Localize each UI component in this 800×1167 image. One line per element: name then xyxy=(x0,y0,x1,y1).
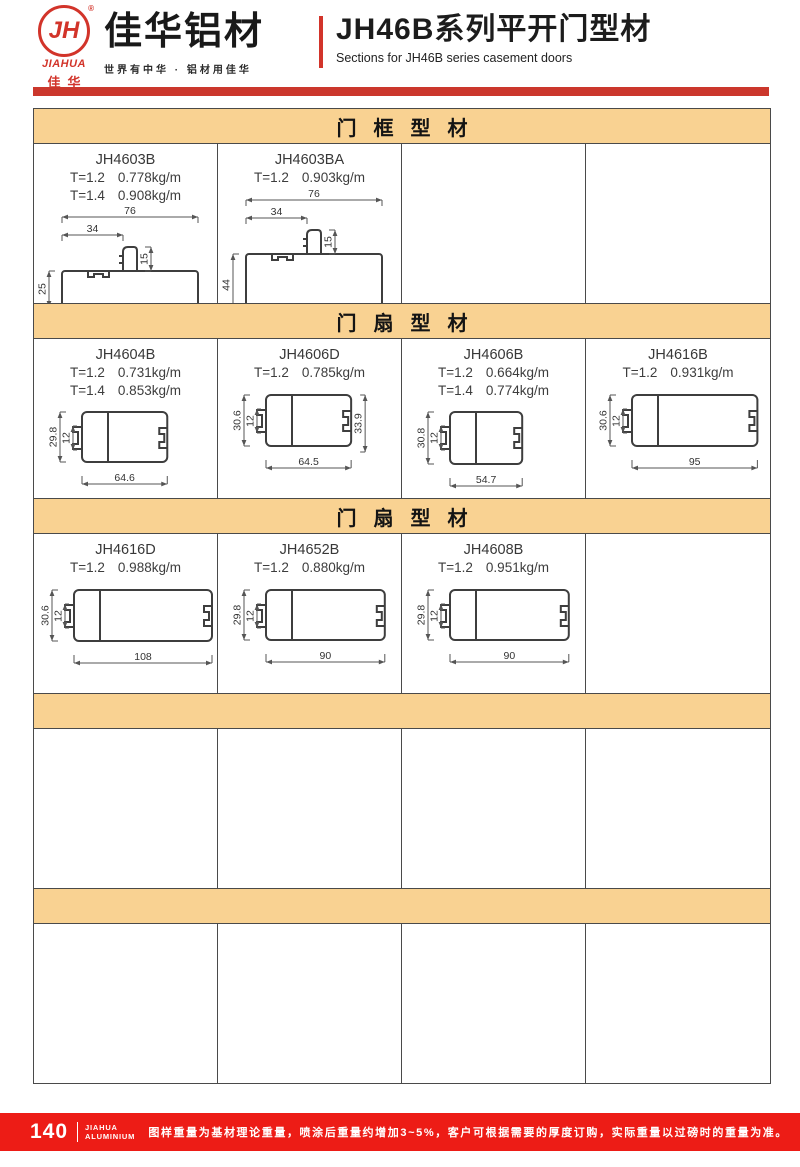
svg-text:29.8: 29.8 xyxy=(47,427,59,448)
profile-drawing: 29.81290 xyxy=(410,578,578,681)
profile-spec: T=1.40.853kg/m xyxy=(70,382,181,400)
svg-text:30.8: 30.8 xyxy=(415,428,427,449)
profile-code: JH4606B xyxy=(464,346,524,364)
profile-cell: JH4616BT=1.20.931kg/m30.61295 xyxy=(586,339,770,498)
profile-spec: T=1.20.664kg/m xyxy=(438,364,549,382)
svg-text:12: 12 xyxy=(244,610,256,622)
svg-text:33.9: 33.9 xyxy=(352,413,364,434)
catalog-page: JH ® JIAHUA 佳华 佳华铝材 世界有中华 · 铝材用佳华 JH46B系… xyxy=(0,0,800,1167)
empty-cell xyxy=(218,924,402,1083)
svg-text:54.7: 54.7 xyxy=(475,474,496,486)
profile-code: JH4604B xyxy=(96,346,156,364)
svg-text:12: 12 xyxy=(244,415,256,427)
profile-spec: T=1.40.774kg/m xyxy=(438,382,549,400)
svg-text:90: 90 xyxy=(319,650,331,662)
empty-cell xyxy=(586,144,770,303)
svg-text:64.5: 64.5 xyxy=(298,456,319,468)
svg-text:30.6: 30.6 xyxy=(231,410,243,431)
spec-thickness: T=1.4 xyxy=(438,382,473,400)
svg-text:12: 12 xyxy=(428,610,440,622)
empty-cell xyxy=(402,924,586,1083)
page-header: JH ® JIAHUA 佳华 佳华铝材 世界有中华 · 铝材用佳华 JH46B系… xyxy=(0,0,800,86)
section-title: 门扇型材 xyxy=(320,502,485,531)
profile-code: JH4652B xyxy=(280,541,340,559)
page-footer: 140 JIAHUA ALUMINIUM 图样重量为基材理论重量，喷涂后重量约增… xyxy=(0,1113,800,1151)
spec-thickness: T=1.2 xyxy=(254,169,289,187)
svg-text:12: 12 xyxy=(428,432,440,444)
profile-code: JH4603B xyxy=(96,151,156,169)
page-number: 140 xyxy=(30,1120,68,1144)
svg-text:12: 12 xyxy=(612,415,623,427)
spec-weight: 0.778kg/m xyxy=(118,169,181,187)
profile-drawing: 76341544 xyxy=(222,188,398,303)
profile-table: 门框型材JH4603BT=1.20.778kg/mT=1.40.908kg/m7… xyxy=(33,108,771,1084)
profile-cell: JH4606BT=1.20.664kg/mT=1.40.774kg/m30.81… xyxy=(402,339,586,498)
spec-thickness: T=1.2 xyxy=(70,559,105,577)
section-header xyxy=(34,693,770,729)
registered-mark-icon: ® xyxy=(88,4,94,13)
company-logo: JH ® JIAHUA 佳华 xyxy=(22,5,106,91)
footer-note: 图样重量为基材理论重量，喷涂后重量约增加3~5%，客户可根据需要的厚度订购，实际… xyxy=(148,1124,788,1140)
page-title: JH46B系列平开门型材 xyxy=(336,13,651,48)
title-block: JH46B系列平开门型材 Sections for JH46B series c… xyxy=(336,13,651,65)
spec-weight: 0.731kg/m xyxy=(118,364,181,382)
spec-weight: 0.951kg/m xyxy=(486,559,549,577)
section-row: JH4603BT=1.20.778kg/mT=1.40.908kg/m76341… xyxy=(34,144,770,303)
spec-weight: 0.853kg/m xyxy=(118,382,181,400)
svg-text:30.6: 30.6 xyxy=(39,605,51,626)
profile-drawing: 30.81254.7 xyxy=(410,400,578,498)
profile-cell: JH4603BT=1.20.778kg/mT=1.40.908kg/m76341… xyxy=(34,144,218,303)
spec-weight: 0.908kg/m xyxy=(118,187,181,205)
svg-text:76: 76 xyxy=(308,188,320,200)
brand-tagline: 世界有中华 · 铝材用佳华 xyxy=(104,61,264,76)
profile-drawing: 76341525 xyxy=(38,205,214,303)
svg-text:34: 34 xyxy=(86,223,98,235)
spec-thickness: T=1.2 xyxy=(438,364,473,382)
section-row: JH4616DT=1.20.988kg/m30.612108JH4652BT=1… xyxy=(34,534,770,693)
empty-cell xyxy=(34,729,218,888)
spec-weight: 0.931kg/m xyxy=(670,364,733,382)
spec-thickness: T=1.2 xyxy=(254,559,289,577)
header-divider xyxy=(319,16,323,68)
profile-cell: JH4603BAT=1.20.903kg/m76341544 xyxy=(218,144,402,303)
profile-spec: T=1.20.951kg/m xyxy=(438,559,549,577)
svg-text:90: 90 xyxy=(503,650,515,662)
spec-weight: 0.903kg/m xyxy=(302,169,365,187)
section-header: 门扇型材 xyxy=(34,498,770,534)
profile-drawing: 29.81290 xyxy=(226,578,394,681)
svg-text:30.6: 30.6 xyxy=(599,410,610,431)
profile-cell: JH4604BT=1.20.731kg/mT=1.40.853kg/m29.81… xyxy=(34,339,218,498)
svg-text:44: 44 xyxy=(222,279,233,291)
profile-code: JH4616B xyxy=(648,346,708,364)
profile-spec: T=1.20.903kg/m xyxy=(254,169,365,187)
spec-thickness: T=1.2 xyxy=(438,559,473,577)
svg-text:25: 25 xyxy=(38,283,49,295)
logo-circle-icon: JH ® xyxy=(38,5,90,57)
section-title: 门框型材 xyxy=(320,112,485,141)
spec-weight: 0.774kg/m xyxy=(486,382,549,400)
profile-cell: JH4652BT=1.20.880kg/m29.81290 xyxy=(218,534,402,693)
footer-brand: JIAHUA ALUMINIUM xyxy=(85,1123,135,1142)
profile-spec: T=1.20.931kg/m xyxy=(623,364,734,382)
profile-spec: T=1.20.778kg/m xyxy=(70,169,181,187)
spec-thickness: T=1.2 xyxy=(70,169,105,187)
section-row: JH4604BT=1.20.731kg/mT=1.40.853kg/m29.81… xyxy=(34,339,770,498)
empty-cell xyxy=(34,924,218,1083)
spec-thickness: T=1.2 xyxy=(254,364,289,382)
svg-text:15: 15 xyxy=(138,253,150,265)
svg-text:76: 76 xyxy=(124,205,136,217)
svg-text:12: 12 xyxy=(52,610,64,622)
profile-cell: JH4616DT=1.20.988kg/m30.612108 xyxy=(34,534,218,693)
profile-cell: JH4606DT=1.20.785kg/m30.61233.964.5 xyxy=(218,339,402,498)
spec-weight: 0.785kg/m xyxy=(302,364,365,382)
spec-thickness: T=1.2 xyxy=(623,364,658,382)
svg-text:64.6: 64.6 xyxy=(114,472,135,484)
svg-text:15: 15 xyxy=(322,236,334,248)
section-row xyxy=(34,924,770,1083)
svg-text:29.8: 29.8 xyxy=(231,604,243,625)
svg-text:12: 12 xyxy=(60,432,72,444)
empty-cell xyxy=(402,729,586,888)
svg-text:95: 95 xyxy=(689,457,701,468)
spec-weight: 0.988kg/m xyxy=(118,559,181,577)
section-row xyxy=(34,729,770,888)
profile-code: JH4608B xyxy=(464,541,524,559)
profile-code: JH4606D xyxy=(279,346,339,364)
page-subtitle: Sections for JH46B series casement doors xyxy=(336,51,651,65)
svg-text:34: 34 xyxy=(270,206,282,218)
profile-drawing: 29.81264.6 xyxy=(42,400,210,498)
spec-thickness: T=1.4 xyxy=(70,187,105,205)
profile-drawing: 30.61295 xyxy=(592,383,763,487)
svg-text:108: 108 xyxy=(134,651,152,663)
footer-brand-line2: ALUMINIUM xyxy=(85,1132,135,1141)
brand-block: 佳华铝材 世界有中华 · 铝材用佳华 xyxy=(104,12,264,76)
empty-cell xyxy=(586,534,770,693)
empty-cell xyxy=(402,144,586,303)
footer-brand-line1: JIAHUA xyxy=(85,1123,118,1132)
section-header: 门扇型材 xyxy=(34,303,770,339)
spec-thickness: T=1.2 xyxy=(70,364,105,382)
empty-cell xyxy=(586,729,770,888)
logo-monogram: JH xyxy=(49,19,80,43)
profile-spec: T=1.20.880kg/m xyxy=(254,559,365,577)
footer-divider xyxy=(77,1122,78,1142)
empty-cell xyxy=(586,924,770,1083)
profile-spec: T=1.20.785kg/m xyxy=(254,364,365,382)
profile-cell: JH4608BT=1.20.951kg/m29.81290 xyxy=(402,534,586,693)
svg-text:29.8: 29.8 xyxy=(415,604,427,625)
logo-name-en: JIAHUA xyxy=(22,58,106,70)
profile-spec: T=1.40.908kg/m xyxy=(70,187,181,205)
profile-spec: T=1.20.731kg/m xyxy=(70,364,181,382)
spec-weight: 0.880kg/m xyxy=(302,559,365,577)
section-title: 门扇型材 xyxy=(320,307,485,336)
profile-drawing: 30.61233.964.5 xyxy=(226,383,394,487)
profile-code: JH4603BA xyxy=(275,151,344,169)
spec-weight: 0.664kg/m xyxy=(486,364,549,382)
profile-drawing: 30.612108 xyxy=(34,578,218,682)
profile-code: JH4616D xyxy=(95,541,155,559)
empty-cell xyxy=(218,729,402,888)
section-header xyxy=(34,888,770,924)
spec-thickness: T=1.4 xyxy=(70,382,105,400)
section-header: 门框型材 xyxy=(34,109,770,144)
brand-name: 佳华铝材 xyxy=(104,12,264,54)
profile-spec: T=1.20.988kg/m xyxy=(70,559,181,577)
header-accent-bar xyxy=(33,87,769,96)
